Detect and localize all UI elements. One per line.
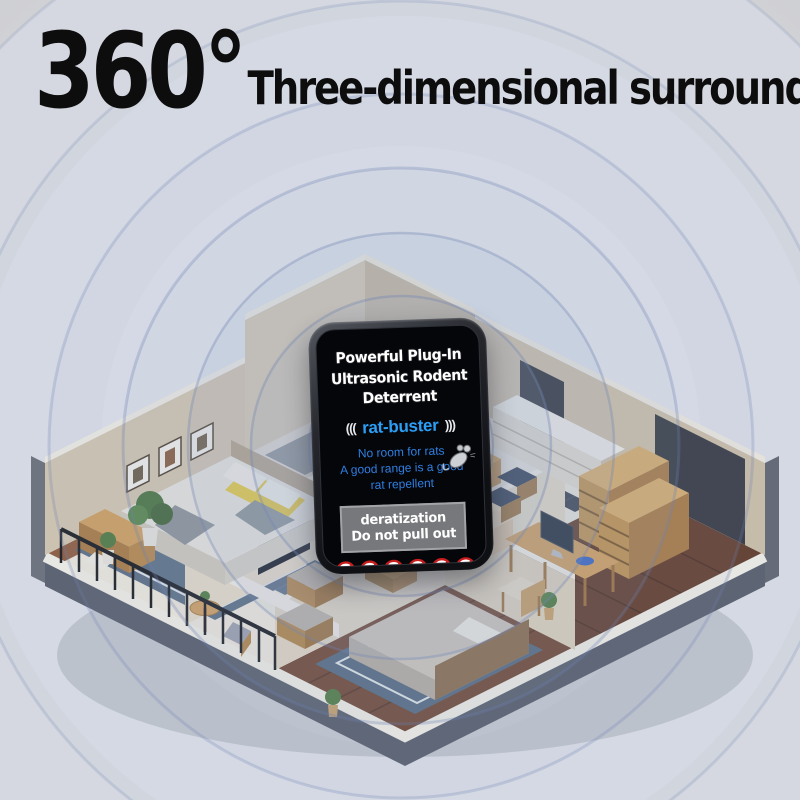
headline: 360° Three-dimensional surround [34, 22, 800, 121]
no-rodent-icon [382, 559, 404, 568]
device-title: Powerful Plug-In Ultrasonic Rodent Deter… [329, 344, 467, 411]
rodent-repeller-device: Powerful Plug-In Ultrasonic Rodent Deter… [308, 317, 495, 575]
device-title-line3: Deterrent [331, 385, 468, 410]
no-rodent-icon [406, 558, 428, 567]
sound-waves-right-icon: ))) [445, 417, 456, 432]
headline-title: Three-dimensional surround [247, 65, 800, 121]
no-rodent-icon-row [334, 557, 476, 568]
device-screen: Powerful Plug-In Ultrasonic Rodent Deter… [315, 324, 487, 568]
warning-label-line2: Do not pull out [351, 526, 456, 547]
no-rodent-icon [334, 561, 356, 568]
warning-label: deratization Do not pull out [340, 501, 468, 553]
no-rodent-icon [454, 557, 476, 568]
no-rodent-icon [430, 558, 452, 568]
brand-logo: ((( rat-buster ))) [345, 415, 455, 439]
headline-degree: 360° [34, 22, 243, 121]
sound-waves-left-icon: ((( [345, 421, 356, 436]
brand-name: rat-buster [360, 416, 441, 438]
mouse-icon [440, 441, 477, 474]
no-rodent-icon [358, 560, 380, 568]
